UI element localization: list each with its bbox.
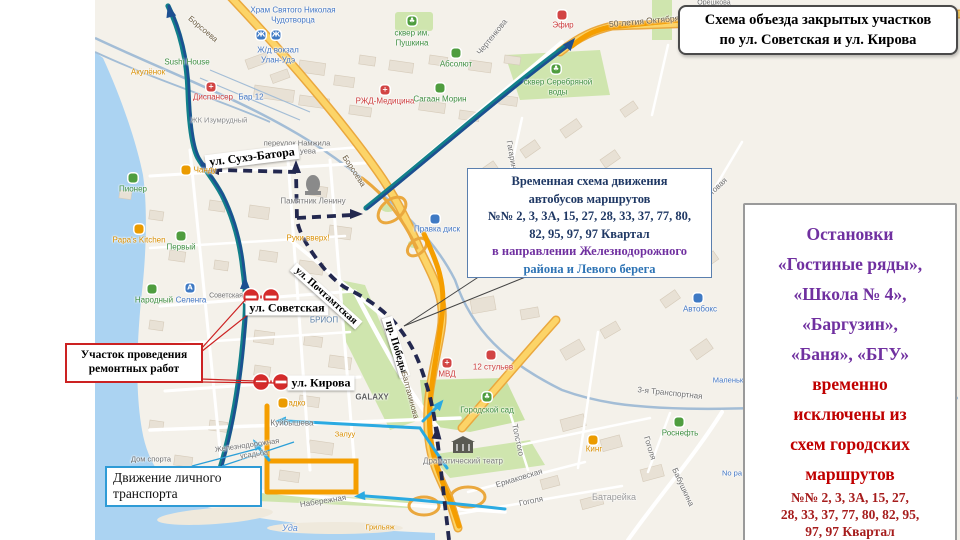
road-works-callout: Участок проведения ремонтных работ <box>65 343 203 383</box>
excluded-stops-panel: Остановки«Гостиные ряды»,«Школа № 4»,«Ба… <box>743 203 957 540</box>
temp-scheme-line: автобусов маршрутов <box>468 191 711 209</box>
stops-panel-line: Остановки <box>745 219 955 249</box>
temp-scheme-line: Временная схема движения <box>468 173 711 191</box>
stops-panel-line: схем городских <box>745 429 955 459</box>
no-entry-icon <box>263 289 280 306</box>
temp-scheme-line: района и Левого берега <box>468 261 711 279</box>
works-line1: Участок проведения <box>67 348 201 362</box>
detour-scheme-slide: Храм Святого НиколаяЧудотворцаЖ/д вокзал… <box>0 0 960 540</box>
no-entry-icon <box>253 374 270 391</box>
title-line1: Схема объезда закрытых участков <box>680 10 956 30</box>
temp-scheme-line: №№ 2, 3, 3А, 15, 27, 28, 33, 37, 77, 80, <box>468 208 711 226</box>
stops-panel-routes-line: 28, 33, 37, 77, 80, 82, 95, <box>745 506 955 523</box>
stops-panel-routes-line: 97, 97 Квартал <box>745 523 955 540</box>
transport-line2: транспорта <box>113 486 254 502</box>
stops-panel-line: маршрутов <box>745 459 955 489</box>
slide-margin <box>0 0 95 540</box>
stops-panel-line: «Баня», «БГУ» <box>745 339 955 369</box>
stops-panel-line: «Гостиные ряды», <box>745 249 955 279</box>
transport-line1: Движение личного <box>113 470 254 486</box>
no-entry-icon <box>273 374 290 391</box>
stops-panel-line: «Школа № 4», <box>745 279 955 309</box>
temp-scheme-callout: Временная схема движенияавтобусов маршру… <box>467 168 712 278</box>
stops-panel-line: исключены из <box>745 399 955 429</box>
personal-transport-callout: Движение личного транспорта <box>105 466 262 507</box>
no-entry-icon <box>243 289 260 306</box>
stops-panel-line: временно <box>745 369 955 399</box>
works-line2: ремонтных работ <box>67 362 201 376</box>
river-sandbar <box>267 522 403 534</box>
temp-scheme-line: 82, 95, 97, 97 Квартал <box>468 226 711 244</box>
temp-scheme-line: в направлении Железнодорожного <box>468 243 711 261</box>
title-box: Схема объезда закрытых участков по ул. С… <box>678 5 958 55</box>
stops-panel-line: «Баргузин», <box>745 309 955 339</box>
title-line2: по ул. Советская и ул. Кирова <box>680 30 956 50</box>
stops-panel-routes-line: №№ 2, 3, 3А, 15, 27, <box>745 489 955 506</box>
